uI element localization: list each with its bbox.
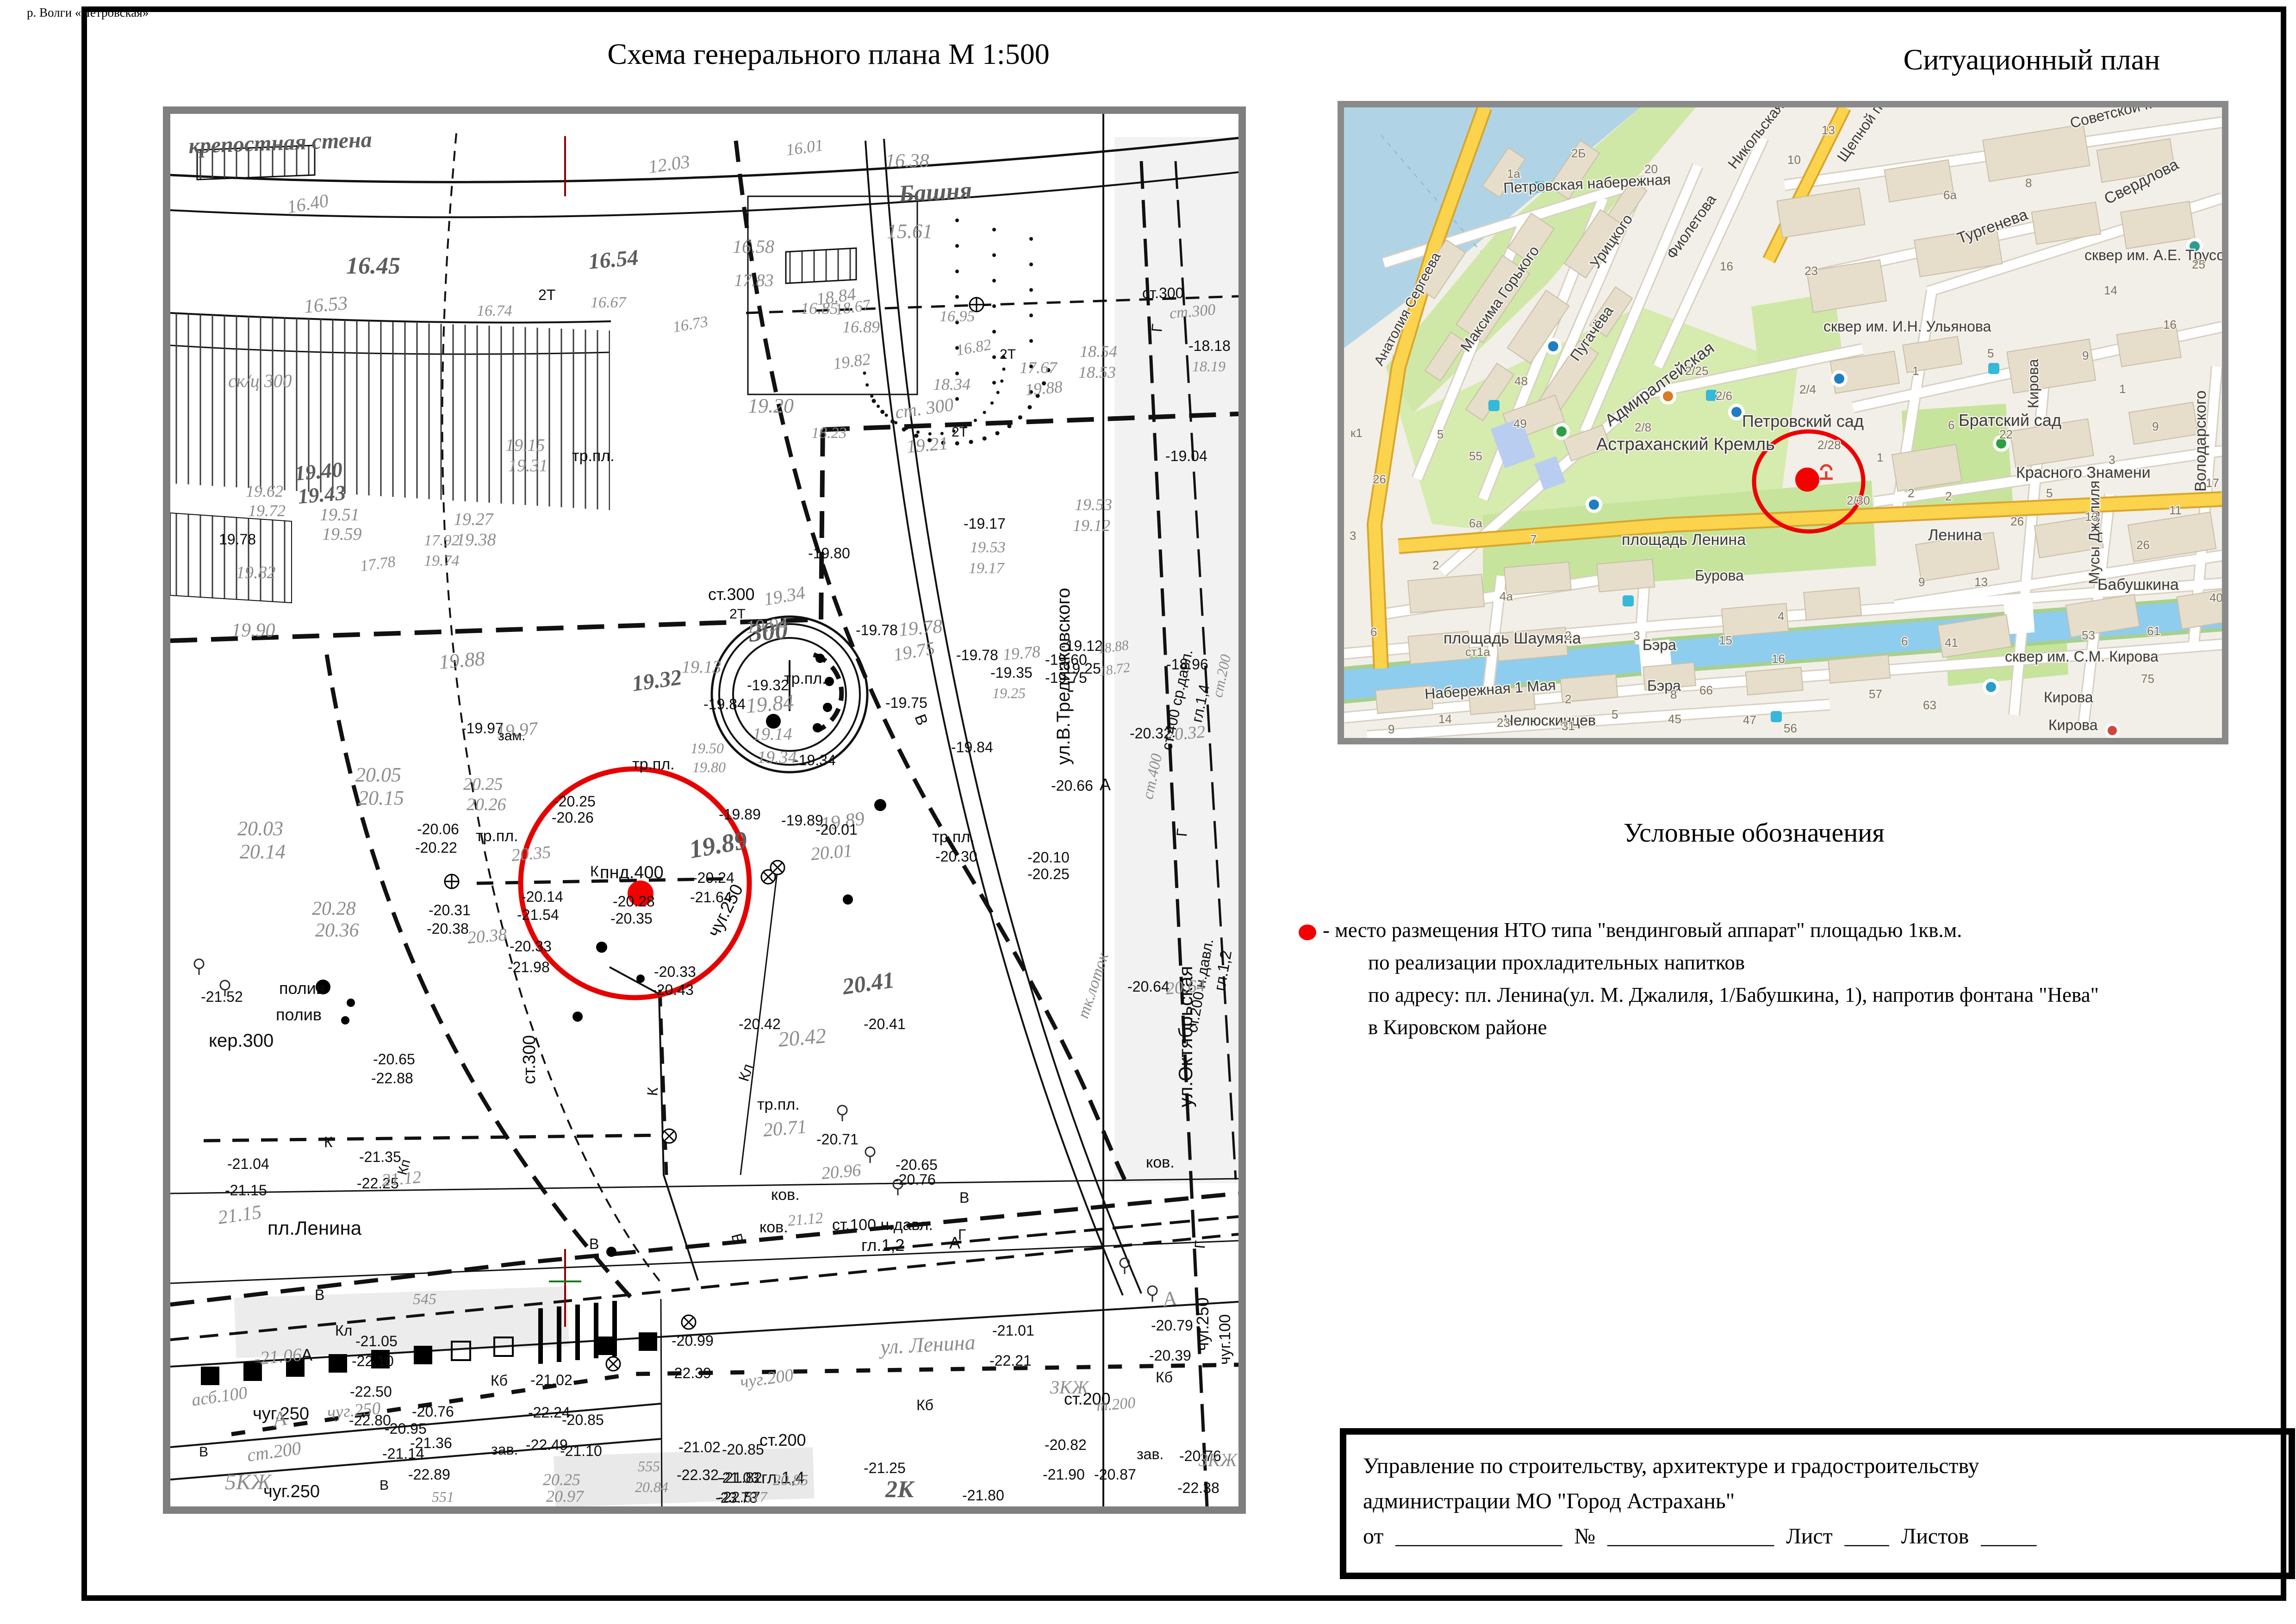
map-label: 5 <box>1987 346 1994 360</box>
map-label: Кб <box>916 1397 933 1413</box>
map-label: 3 <box>2109 453 2115 467</box>
map-label: т.200 <box>1095 1394 1136 1415</box>
map-label: -21.02 <box>530 1372 572 1388</box>
map-label: 22 <box>1999 427 2013 441</box>
map-label: Братский сад <box>1959 411 2061 430</box>
map-label: 2/30 <box>1847 493 1870 507</box>
map-label: сквер им. И.Н. Ульянова <box>1823 318 1991 335</box>
map-label: 16.67 <box>591 294 627 311</box>
map-label: 5 <box>1437 427 1444 441</box>
title-block: Управление по строительству, архитектуре… <box>1340 1428 2295 1579</box>
map-label: -20.79 <box>1151 1317 1193 1334</box>
map-label: 555 <box>638 1458 660 1474</box>
map-label: -20.85 <box>562 1412 604 1428</box>
map-label: Кб <box>491 1372 508 1389</box>
map-label: Кб <box>1156 1369 1173 1386</box>
map-label: 20.38 <box>467 925 508 948</box>
map-label: полив <box>279 979 325 998</box>
map-label: 19.12 <box>1073 516 1110 535</box>
map-label: 8 <box>1670 687 1677 701</box>
map-label: -21.98 <box>508 959 550 975</box>
map-label: 15.61 <box>887 220 933 243</box>
map-label: 19.50 <box>691 740 724 756</box>
map-label: -20.26 <box>552 809 594 826</box>
map-label: 16.40 <box>286 190 330 218</box>
map-label: -21.54 <box>517 906 559 923</box>
map-label: -21.35 <box>359 1149 401 1165</box>
map-label: -20.41 <box>864 1016 906 1032</box>
map-label: -20.35 <box>610 910 653 927</box>
map-label: 19.84 <box>745 690 795 718</box>
map-label: 8 <box>2025 176 2032 190</box>
map-label: 2 <box>1908 486 1914 500</box>
map-label: 18.54 <box>1080 342 1117 361</box>
map-label: В <box>199 1444 208 1460</box>
map-label: -20.64 <box>1127 978 1170 995</box>
map-label: -19.78 <box>956 647 998 663</box>
map-label: -21.36 <box>410 1435 452 1451</box>
map-label: 56 <box>1784 721 1797 735</box>
map-label: 2 <box>1945 489 1952 503</box>
map-label: 19.59 <box>322 525 362 544</box>
general-plan-map: крепостная стена16.4516.4016.5316.5416.5… <box>163 106 1246 1514</box>
map-label: Кл <box>335 1322 352 1339</box>
map-label: чуг.250 <box>1193 1297 1212 1351</box>
map-label: Бабушкина <box>2097 576 2179 593</box>
map-label: 14 <box>1438 712 1452 726</box>
map-label: -19.34 <box>794 752 836 768</box>
map-label: -22.38 <box>1177 1480 1220 1496</box>
map-label: 31 <box>1562 719 1575 733</box>
map-label: 23 <box>1497 716 1510 730</box>
map-label: 20.71 <box>762 1116 808 1141</box>
map-label: -21.04 <box>227 1156 269 1172</box>
map-label: 9 <box>1918 575 1925 589</box>
map-label: Г <box>1173 828 1190 837</box>
map-label: 19.13 <box>682 657 722 677</box>
map-label: -22.39 <box>669 1365 711 1381</box>
map-label: ков. <box>1146 1154 1175 1171</box>
map-label: 20.42 <box>777 1024 827 1051</box>
map-label: 2/4 <box>1799 382 1816 396</box>
map-label: 19.17 <box>969 560 1005 577</box>
map-label: 20.36 <box>315 920 359 941</box>
map-label: -21.02 <box>678 1439 721 1455</box>
map-label: ул. Ленина <box>878 1330 976 1359</box>
number-blank: _______________ <box>1607 1524 1774 1549</box>
map-label: 5КЖ <box>225 1470 272 1494</box>
title-block-org-line2: администрации МО "Город Астрахань" <box>1363 1484 2289 1519</box>
map-label: тр.пл. <box>757 1096 800 1113</box>
legend-row: - место размещения НТО типа "вендинговый… <box>1299 916 2293 948</box>
map-label: -18.18 <box>1188 337 1231 354</box>
map-label: -20.65 <box>896 1156 938 1173</box>
map-label: 21.15 <box>217 1201 263 1229</box>
map-label: К <box>590 863 599 880</box>
map-label: 19.90 <box>231 620 275 641</box>
map-label: А <box>301 1345 312 1364</box>
map-label: 26 <box>2136 538 2150 552</box>
map-label: асб.100 <box>190 1383 249 1410</box>
map-label: 20.35 <box>510 843 552 865</box>
map-label: -19.04 <box>1165 448 1207 464</box>
map-label: 11 <box>2169 503 2182 517</box>
map-label: пнд.400 <box>600 863 664 882</box>
map-label: 3КЖ <box>1050 1377 1090 1398</box>
map-label: 4а <box>1500 589 1513 603</box>
map-label: зав. <box>1137 1446 1164 1462</box>
map-label: -20.39 <box>1149 1347 1191 1364</box>
plan-sheet: р. Волги «Петровская» Схема генерального… <box>0 0 2296 1624</box>
map-label: 19.32 <box>630 665 683 696</box>
map-label: 63 <box>1923 698 1936 712</box>
genplan-title: Схема генерального плана М 1:500 <box>551 37 1106 71</box>
map-label: -19.32 <box>747 677 789 693</box>
map-label: 48 <box>1514 374 1528 388</box>
map-label: А <box>1160 1287 1178 1312</box>
map-label: ст. 300 <box>894 394 955 423</box>
map-label: -20.66 <box>1051 777 1093 794</box>
map-label: К <box>324 1134 333 1150</box>
map-label: -19.35 <box>990 664 1033 681</box>
map-label: 2 <box>1565 629 1571 643</box>
map-label: тр.пл. <box>932 828 975 846</box>
map-label: 9 <box>2082 349 2089 362</box>
map-label: 10 <box>1787 153 1801 167</box>
map-label: -20.38 <box>427 920 469 937</box>
map-label: Астраханский Кремль <box>1596 435 1775 454</box>
legend: - место размещения НТО типа "вендинговый… <box>1299 916 2293 1045</box>
map-label: 19.75 <box>892 637 936 665</box>
map-label: 2 <box>1565 692 1571 706</box>
map-label: 53 <box>2082 628 2095 642</box>
map-label: 20.41 <box>840 967 896 999</box>
map-label: -21.10 <box>560 1443 602 1459</box>
map-label: 7 <box>1530 532 1537 546</box>
map-label: -20.31 <box>429 902 471 918</box>
map-label: -20.01 <box>815 821 858 838</box>
map-label: 21.12 <box>787 1209 823 1230</box>
map-label: Ленина <box>1928 526 1982 544</box>
map-label: 6 <box>1948 418 1954 432</box>
map-label: -20.22 <box>415 839 457 856</box>
map-label: -19.89 <box>719 806 761 823</box>
map-label: 5 <box>2046 486 2053 500</box>
map-label: пл.Ленина <box>268 1217 362 1239</box>
map-label: -20.71 <box>816 1131 859 1148</box>
map-label: 20.01 <box>810 840 853 864</box>
map-label: 6 <box>1901 634 1908 648</box>
legend-row: по адресу: пл. Ленина(ул. М. Джалиля, 1/… <box>1299 981 2293 1013</box>
title-block-org-line1: Управление по строительству, архитектуре… <box>1363 1449 2289 1484</box>
map-label: тр.пл. <box>572 447 615 465</box>
map-label: 16.01 <box>785 136 825 159</box>
map-label: 1 <box>1912 364 1919 378</box>
map-label: 4 <box>1778 609 1784 623</box>
map-label: 2Б <box>1571 146 1586 160</box>
map-label: ст1а <box>1465 645 1490 659</box>
map-label: 61 <box>2147 624 2160 638</box>
map-label: Красного Знамени <box>2016 464 2151 481</box>
map-label: 6 <box>1370 625 1377 639</box>
map-label: -20.87 <box>1094 1466 1136 1483</box>
map-label: ЗКЖ <box>1199 1449 1238 1470</box>
map-label: 16.95 <box>940 308 975 325</box>
map-label: 15 <box>1719 633 1732 647</box>
map-label: -20.76 <box>894 1171 936 1188</box>
map-label: 55 <box>1469 449 1482 463</box>
map-label: 20.97 <box>546 1487 585 1505</box>
map-label: 3 <box>1350 529 1356 543</box>
map-label: В <box>380 1478 389 1493</box>
map-label: -20.30 <box>935 848 977 865</box>
map-label: Петровский сад <box>1742 412 1864 431</box>
map-label: 19.27 <box>454 510 494 529</box>
map-label: -21.15 <box>225 1182 267 1199</box>
map-label: 20.96 <box>821 1161 862 1183</box>
map-label: зав. <box>491 1441 518 1458</box>
legend-red-dot-icon <box>1299 924 1316 940</box>
map-label: 9 <box>1388 722 1394 736</box>
map-label: 19.62 <box>246 482 283 500</box>
map-label: площадь Ленина <box>1622 531 1746 549</box>
sitplan-title: Ситуационный план <box>1828 43 2235 77</box>
map-label: 17.78 <box>359 553 397 575</box>
map-label: 19.74 <box>424 552 460 569</box>
map-label: 2/28 <box>1817 438 1841 452</box>
map-label: 5 <box>1612 707 1618 721</box>
map-label: 2/6 <box>1716 389 1732 403</box>
map-label: 21.12 <box>381 1168 422 1190</box>
situational-plan-map: Петровская набережнаяНикольскаяУрицкогоФ… <box>1338 101 2228 744</box>
map-label: 2Т <box>952 425 968 440</box>
map-label: 117 <box>746 1488 768 1505</box>
map-label: площадь Шаумяна <box>1444 630 1581 647</box>
map-label: 20.03 <box>237 817 283 840</box>
map-label: ст.200 <box>759 1430 806 1449</box>
map-label: 16.82 <box>955 336 993 359</box>
map-label: 16.54 <box>587 245 639 274</box>
map-label: 20.25 <box>543 1470 580 1489</box>
map-label: 26 <box>2010 514 2024 528</box>
map-label: 6а <box>1469 516 1482 530</box>
map-label: 19.53 <box>970 539 1006 556</box>
map-label: 17 <box>2206 476 2219 490</box>
map-label: 13 <box>2085 510 2098 524</box>
map-label: тк.лоток <box>1074 949 1113 1020</box>
map-label: 49 <box>1513 417 1527 431</box>
map-label: 47 <box>1743 713 1756 727</box>
map-label: 18.34 <box>933 375 971 394</box>
map-label: 19.72 <box>248 501 286 520</box>
map-label: кер.300 <box>209 1031 274 1051</box>
map-label: Кирова <box>2025 359 2041 408</box>
map-label: 19.15 <box>505 436 545 455</box>
map-label: 16 <box>1772 652 1785 666</box>
map-label: ков. <box>759 1218 788 1236</box>
map-label: 19.94 <box>745 613 789 637</box>
map-label: -20.33 <box>654 963 696 980</box>
map-label: 40 <box>2209 591 2222 605</box>
map-label: -21.82 <box>720 1469 762 1486</box>
map-label: 20.28 <box>312 898 356 919</box>
map-label: крепостная стена <box>188 127 373 158</box>
map-label: 19.21 <box>906 432 949 457</box>
map-label: 19.88 <box>1024 377 1063 399</box>
map-label: К <box>644 1087 661 1097</box>
map-label: 26 <box>1373 472 1386 486</box>
map-label: -19.17 <box>964 515 1006 532</box>
map-label: 16.45 <box>346 253 400 279</box>
map-label: 551 <box>432 1488 454 1505</box>
map-label: 41 <box>1945 636 1958 650</box>
map-label: 17.83 <box>734 271 774 290</box>
map-label: -20.10 <box>1027 849 1070 866</box>
placement-dot <box>1795 468 1819 492</box>
map-label: 17.67 <box>1020 358 1058 377</box>
map-label: 1 <box>2119 382 2126 396</box>
map-label: 20.05 <box>355 763 401 786</box>
map-label: 20.84 <box>635 1479 668 1495</box>
map-label: Бурова <box>1695 567 1744 584</box>
map-label: 2К <box>885 1476 915 1503</box>
map-label: В <box>959 1189 969 1206</box>
map-label: 16 <box>2163 318 2177 331</box>
map-label: -21.01 <box>992 1322 1034 1339</box>
map-label: 16.89 <box>842 318 880 336</box>
map-label: -22.50 <box>350 1383 392 1400</box>
map-label: -20.82 <box>1045 1437 1087 1453</box>
map-label: -20.43 <box>652 981 694 998</box>
map-label: 23 <box>1804 264 1818 278</box>
map-label: 19.31 <box>508 456 548 475</box>
map-label: ст.300 <box>1142 285 1183 301</box>
map-label: -20.25 <box>554 793 596 810</box>
map-label: В <box>589 1236 599 1252</box>
map-label: 19.53 <box>1075 495 1112 514</box>
map-label: ск/ц 300 <box>228 370 292 391</box>
map-label: -22.88 <box>371 1070 413 1087</box>
map-label: 19.51 <box>320 505 360 525</box>
map-label: 9 <box>2152 419 2159 433</box>
map-label: 57 <box>1869 687 1882 701</box>
map-label: 16.74 <box>477 302 512 319</box>
sheet-blank: ____ <box>1845 1524 1889 1549</box>
map-label: 19.78 <box>219 531 256 548</box>
map-label: 19.80 <box>692 759 726 775</box>
from-blank: _______________ <box>1395 1524 1562 1549</box>
from-label: от <box>1363 1524 1383 1549</box>
map-label: 18.19 <box>1192 358 1226 375</box>
map-label: 20.85 <box>773 1472 809 1489</box>
map-label: -21.25 <box>864 1460 906 1476</box>
map-label: 14 <box>2104 283 2117 297</box>
map-label: А <box>949 1233 960 1252</box>
map-label: 6а <box>1943 188 1957 202</box>
map-label: 16.53 <box>303 293 348 318</box>
map-label: 13 <box>1974 575 1988 589</box>
map-label: 2Т <box>1000 347 1016 362</box>
map-label: -21.80 <box>962 1487 1004 1504</box>
legend-heading: Условные обозначения <box>1513 817 1995 848</box>
map-label: 19.43 <box>297 481 347 508</box>
map-label: Бэра <box>1643 637 1676 653</box>
map-label: полив <box>276 1005 322 1024</box>
map-label: -19.84 <box>703 696 746 712</box>
map-label: 19.14 <box>753 725 792 744</box>
map-label: 2Т <box>729 606 746 622</box>
map-label: чуг.250 <box>263 1482 320 1501</box>
map-label: -20.28 <box>613 893 655 910</box>
number-label: № <box>1574 1524 1595 1549</box>
map-label: тр.пл. <box>632 756 675 773</box>
map-label: ст.100 н.давл. <box>832 1216 933 1234</box>
map-label: -20.14 <box>521 888 563 905</box>
map-label: 25 <box>2192 257 2205 271</box>
map-label: -20.65 <box>373 1051 415 1068</box>
map-label: ул.В.Тредиаковского <box>1053 588 1074 765</box>
map-label: чуг.100 <box>1216 1314 1234 1365</box>
map-label: Мусы Джалиля <box>2086 481 2103 584</box>
map-label: 66 <box>1699 683 1713 697</box>
map-label: -20.24 <box>692 869 734 886</box>
map-label: -21.05 <box>355 1333 398 1349</box>
sheet-label: Лист <box>1786 1524 1833 1549</box>
map-label: А <box>1100 775 1111 794</box>
map-label: 2 <box>1432 558 1439 572</box>
map-label: Кирова <box>2044 689 2093 706</box>
map-label: тр.пл. <box>784 670 827 687</box>
map-label: 19.82 <box>236 563 276 582</box>
map-label: -20.06 <box>417 821 459 837</box>
map-label: Челюскинцев <box>1504 712 1596 729</box>
map-label: 19.20 <box>748 394 794 417</box>
map-label: 20.25 <box>463 775 503 794</box>
map-label: -19.78 <box>856 622 898 638</box>
map-label: ков. <box>771 1186 800 1204</box>
map-label: к1 <box>1350 426 1363 440</box>
map-label: -20.76 <box>412 1403 454 1420</box>
map-label: 16.38 <box>885 150 929 172</box>
map-label: 20.64 <box>1165 976 1206 999</box>
map-label: зам. <box>498 728 525 743</box>
map-label: 2/8 <box>1635 420 1651 434</box>
map-label: -22.32 <box>677 1467 719 1483</box>
map-label: 20 <box>1644 162 1658 176</box>
legend-line: - место размещения НТО типа "вендинговый… <box>1323 918 1962 942</box>
title-block-fields: от_______________№_______________Лист___… <box>1363 1519 2289 1554</box>
map-label: -21.06 <box>253 1344 303 1369</box>
map-label: 19.88 <box>438 647 486 674</box>
map-label: 19.82 <box>832 350 872 373</box>
map-label: 45 <box>1668 712 1681 726</box>
map-label: Кирова <box>2048 717 2098 733</box>
map-label: 17.92 <box>424 532 460 549</box>
map-label: 18.53 <box>1078 363 1116 381</box>
map-label: -22.89 <box>408 1466 450 1483</box>
map-label: 16 <box>1720 259 1733 273</box>
map-label: чуг.200 <box>739 1365 795 1392</box>
map-label: -19.75 <box>885 694 927 711</box>
map-label: Башня <box>898 177 973 207</box>
map-label: 2Т <box>538 287 555 303</box>
sheets-label: Листов <box>1901 1524 1969 1549</box>
map-label: -21.52 <box>201 988 243 1005</box>
map-label: В <box>315 1287 324 1303</box>
map-label: -20.33 <box>510 938 552 955</box>
map-label: 18.23 <box>811 425 847 442</box>
map-label: тр.пл. <box>476 827 518 845</box>
